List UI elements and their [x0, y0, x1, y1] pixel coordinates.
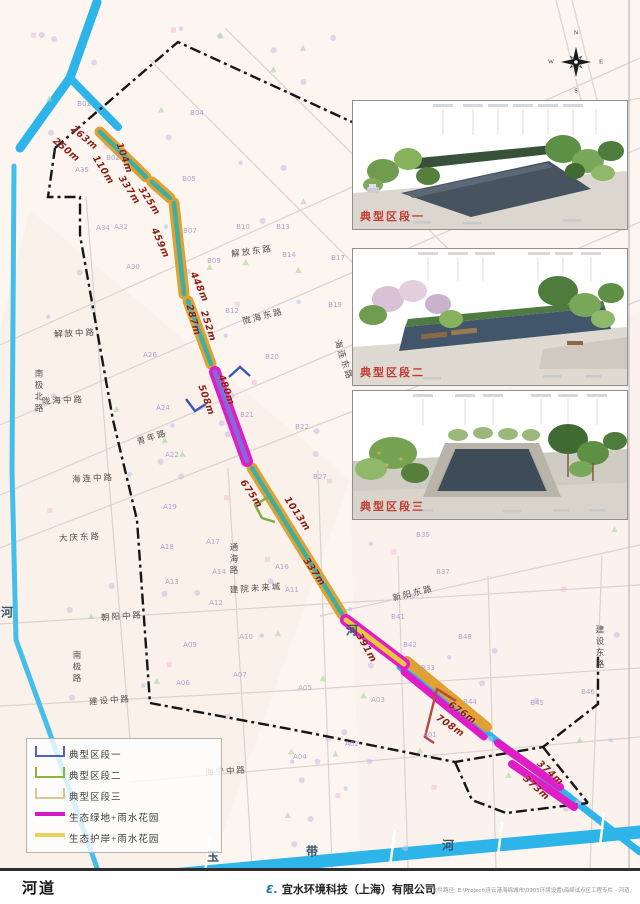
road-name-label: 南极路 [71, 651, 83, 686]
parcel-id-label: A14 [212, 568, 226, 576]
parcel-id-label: A06 [176, 679, 190, 687]
parcel-id-label: B09 [207, 257, 221, 265]
legend-item: 典型区段一 [33, 743, 215, 764]
parcel-id-label: B21 [240, 411, 254, 419]
typical-section-2-panel: 典型区段二 [352, 248, 628, 386]
legend-item: 典型区段三 [33, 785, 215, 806]
river-name-char: 河 [442, 837, 454, 854]
parcel-id-label: B33 [421, 664, 435, 672]
map-canvas[interactable]: N E S W 263m250m110m104m337m325m459m448m… [0, 0, 640, 868]
parcel-id-label: A01 [423, 731, 437, 739]
sheet-title: 河道 [22, 877, 56, 898]
typical-section-2-label: 典型区段二 [360, 364, 425, 380]
parcel-id-label: A05 [298, 684, 312, 692]
parcel-id-label: B22 [295, 423, 309, 431]
compass-east-label: E [599, 59, 603, 66]
parcel-id-label: B01 [77, 100, 91, 108]
typical-section-3-panel: 典型区段三 [352, 390, 628, 520]
legend-symbol [33, 785, 69, 806]
parcel-id-label: B05 [182, 175, 196, 183]
road-name-label: 大庆东路 [59, 530, 102, 544]
legend-item: 生态护岸+雨水花园 [33, 827, 215, 848]
parcel-id-label: B14 [282, 251, 296, 259]
parcel-id-label: B12 [225, 307, 239, 315]
company-logo: Ɛ. [266, 883, 278, 896]
compass-south-label: S [574, 88, 578, 95]
company-credit: Ɛ.宜水环境科技（上海）有限公司 [266, 881, 436, 897]
parcel-id-label: A09 [183, 641, 197, 649]
parcel-id-label: A30 [126, 263, 140, 271]
river-name-char: 带 [306, 843, 318, 860]
legend-label: 典型区段三 [69, 789, 122, 803]
parcel-id-label: A35 [75, 166, 89, 174]
parcel-id-label: B42 [403, 641, 417, 649]
typical-section-1-label: 典型区段一 [360, 208, 425, 224]
parcel-id-label: B13 [276, 223, 290, 231]
parcel-id-label: A19 [163, 503, 177, 511]
parcel-id-label: A18 [160, 543, 174, 551]
parcel-id-label: A12 [209, 599, 223, 607]
compass-north-label: N [574, 30, 579, 37]
compass-west-label: W [548, 59, 554, 66]
parcel-id-label: B04 [190, 109, 204, 117]
road-name-label: 建设东路 [594, 625, 606, 671]
parcel-id-label: B45 [530, 699, 544, 707]
legend-symbol [33, 743, 69, 764]
road-name-label: 通海路 [228, 543, 240, 578]
parcel-id-label: B27 [313, 473, 327, 481]
legend-item: 典型区段二 [33, 764, 215, 785]
parcel-id-label: B17 [331, 254, 345, 262]
parcel-id-label: B19 [328, 301, 342, 309]
road-name-label: 解放中路 [54, 326, 97, 340]
parcel-id-label: B10 [236, 223, 250, 231]
parcel-id-label: B41 [391, 613, 405, 621]
parcel-id-label: B44 [463, 698, 477, 706]
footer-bar: 河道 Ɛ.宜水环境科技（上海）有限公司 文件路径: E:\Project\连云港… [0, 871, 640, 904]
legend-symbol [33, 806, 69, 827]
compass-rose [559, 45, 593, 79]
parcel-id-label: A17 [206, 538, 220, 546]
parcel-id-label: A04 [293, 753, 307, 761]
parcel-id-label: A34 [96, 224, 110, 232]
legend-label: 生态护岸+雨水花园 [69, 831, 159, 845]
typical-section-1-panel: 典型区段一 [352, 100, 628, 230]
road-name-label: 海连中路 [72, 471, 115, 485]
parcel-id-label: A11 [285, 586, 299, 594]
map-legend: 典型区段一典型区段二典型区段三生态绿地+雨水花园生态护岸+雨水花园 [26, 738, 222, 853]
parcel-id-label: A16 [275, 563, 289, 571]
parcel-id-label: A13 [165, 578, 179, 586]
parcel-id-label: A07 [233, 671, 247, 679]
road-name-label: 南极北路 [33, 369, 45, 415]
parcel-id-label: B48 [458, 633, 472, 641]
legend-label: 生态绿地+雨水花园 [69, 810, 159, 824]
parcel-id-label: A10 [239, 633, 253, 641]
legend-label: 典型区段一 [69, 747, 122, 761]
parcel-id-label: B07 [183, 227, 197, 235]
parcel-id-label: B46 [581, 688, 595, 696]
parcel-id-label: B02 [106, 154, 120, 162]
legend-label: 典型区段二 [69, 768, 122, 782]
river-name-char: 河 [346, 622, 358, 639]
parcel-id-label: A26 [143, 351, 157, 359]
parcel-id-label: A32 [114, 223, 128, 231]
typical-section-3-label: 典型区段三 [360, 498, 425, 514]
parcel-id-label: B35 [416, 531, 430, 539]
parcel-id-label: A22 [165, 451, 179, 459]
parcel-id-label: A24 [156, 404, 170, 412]
parcel-id-label: A02 [345, 740, 359, 748]
parcel-id-label: A03 [371, 696, 385, 704]
road-name-label: 陇海中路 [42, 393, 85, 407]
legend-item: 生态绿地+雨水花园 [33, 806, 215, 827]
legend-symbol [33, 827, 69, 848]
plan-sheet: N E S W 263m250m110m104m337m325m459m448m… [0, 0, 640, 904]
company-name: 宜水环境科技（上海）有限公司 [282, 883, 436, 896]
river-name-char: 河 [1, 604, 13, 621]
parcel-id-label: B37 [436, 568, 450, 576]
parcel-id-label: B20 [265, 353, 279, 361]
file-path-note: 文件路径: E:\Project\连云港海绵城市\0905环境设置\海绵试点区工… [432, 886, 632, 894]
legend-symbol [33, 764, 69, 785]
